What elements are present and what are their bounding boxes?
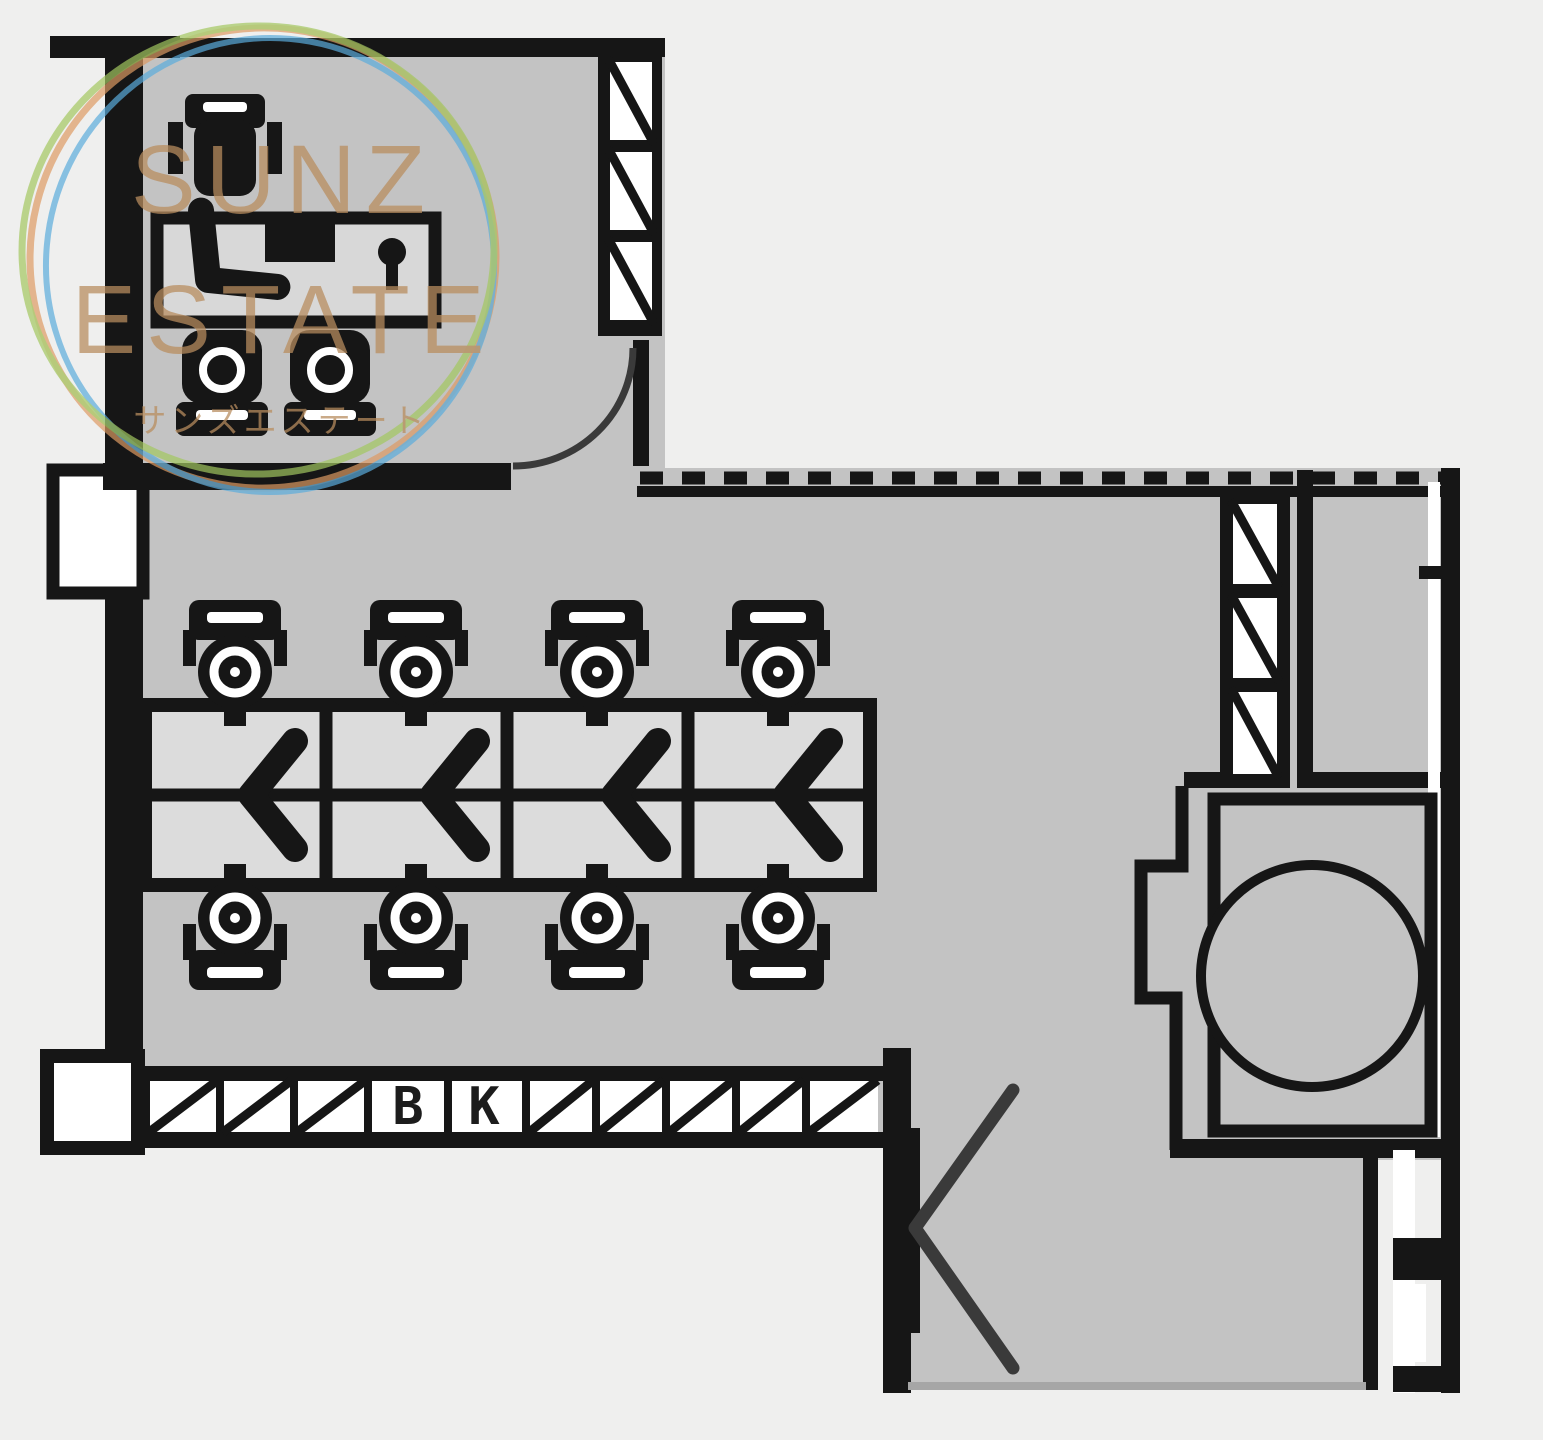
bk-letter-k: K	[468, 1077, 500, 1137]
floor-plan-page: B K	[0, 0, 1543, 1440]
wall-tick-right	[1419, 566, 1460, 579]
bk-letter-b: B	[392, 1077, 423, 1137]
wall-divider-right	[1297, 470, 1313, 788]
wall-entry-right-inner	[1363, 1150, 1378, 1390]
floor-plan-canvas: B K	[0, 0, 1543, 1440]
hatched-pillar-right	[1220, 490, 1290, 788]
watermark-brand-line2: ESTATE	[72, 265, 495, 374]
watermark-caption: サンズエステート	[133, 402, 428, 439]
hatched-pillar-top	[598, 40, 662, 336]
door-track-block	[1393, 1238, 1445, 1280]
door-track-slot	[1402, 1284, 1426, 1362]
watermark-brand-line1: SUNZ	[131, 125, 435, 234]
window-box-bottom-left	[47, 1056, 138, 1148]
wall-bottom-strip: B K	[137, 1066, 894, 1148]
round-table-icon	[1201, 865, 1423, 1087]
door-track-end	[1393, 1366, 1445, 1392]
floor-edge-bottom	[908, 1382, 1366, 1390]
